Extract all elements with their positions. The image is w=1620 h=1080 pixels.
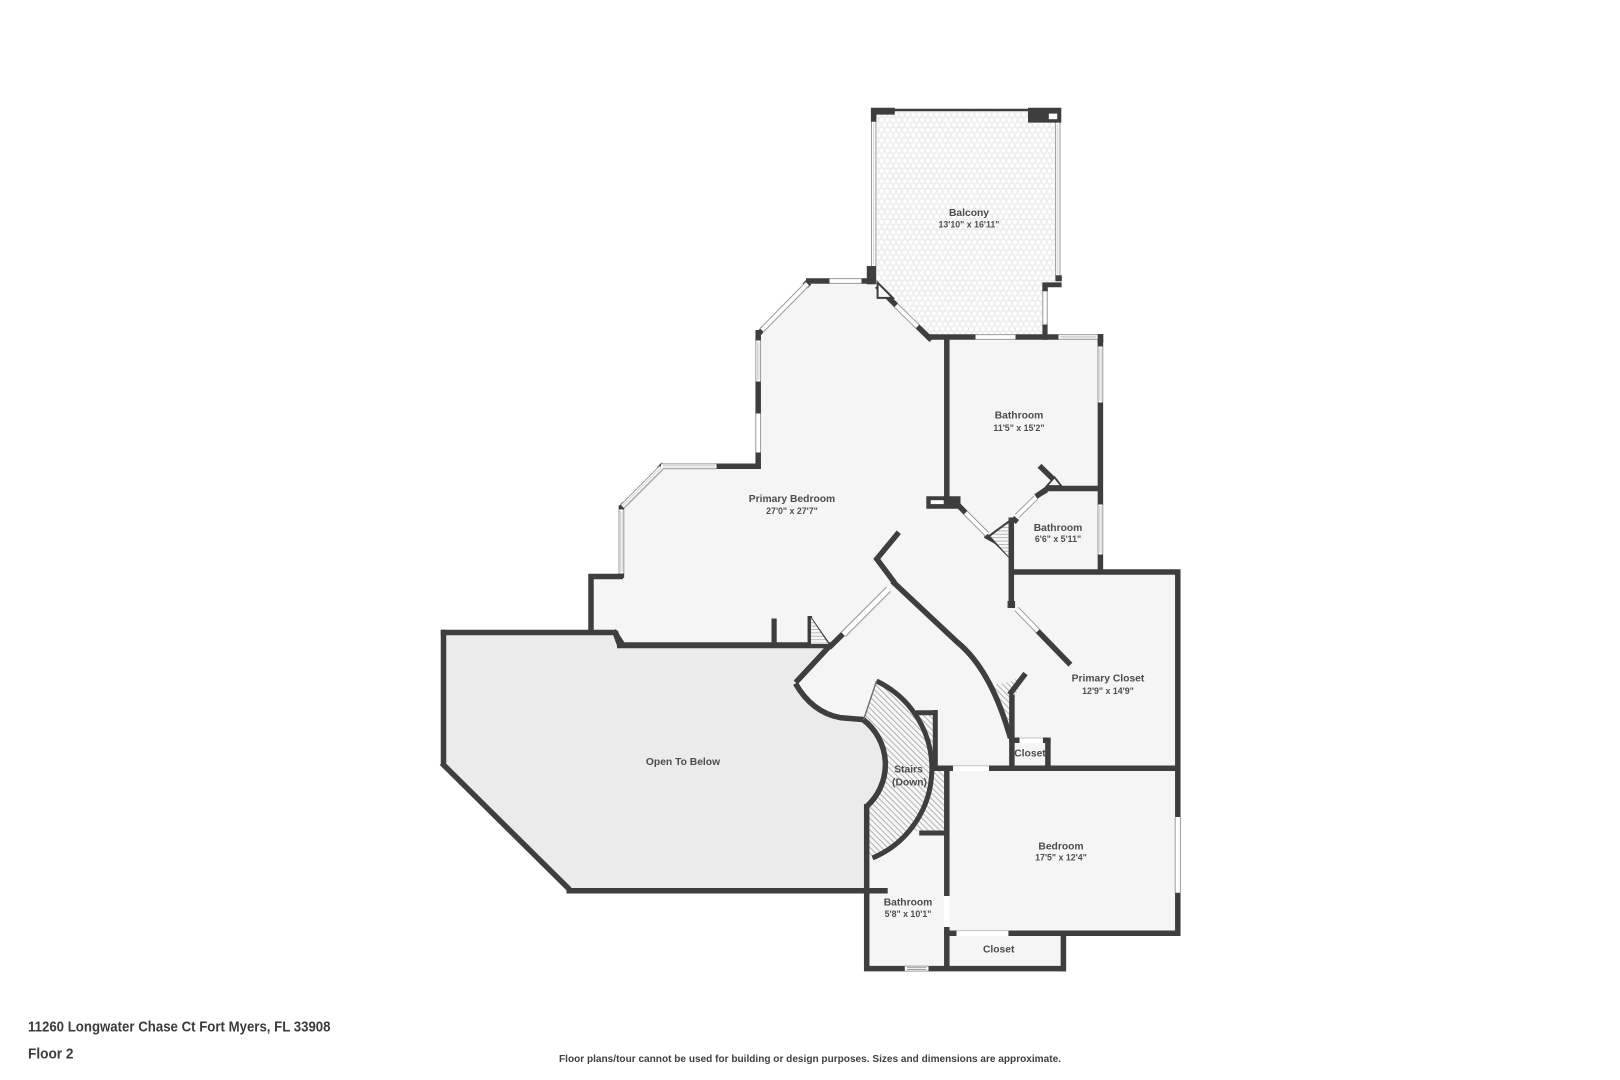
svg-text:Open To Below: Open To Below [646, 757, 721, 768]
svg-text:(Down): (Down) [892, 777, 927, 788]
svg-text:11'5" x 15'2": 11'5" x 15'2" [993, 423, 1044, 433]
svg-text:12'9" x 14'9": 12'9" x 14'9" [1082, 686, 1134, 696]
svg-text:Bathroom: Bathroom [1034, 523, 1083, 534]
svg-text:Closet: Closet [983, 945, 1015, 956]
svg-text:Closet: Closet [1014, 748, 1046, 759]
svg-text:11260 Longwater Chase Ct Fort: 11260 Longwater Chase Ct Fort Myers, FL … [28, 1020, 331, 1036]
svg-text:Stairs: Stairs [894, 765, 923, 776]
svg-text:Bathroom: Bathroom [884, 898, 933, 909]
svg-text:13'10" x 16'11": 13'10" x 16'11" [939, 220, 1000, 230]
svg-text:6'6" x 5'11": 6'6" x 5'11" [1035, 534, 1081, 544]
svg-text:Balcony: Balcony [949, 208, 989, 219]
svg-text:Primary Closet: Primary Closet [1072, 674, 1145, 685]
svg-text:Floor plans/tour cannot be use: Floor plans/tour cannot be used for buil… [559, 1054, 1061, 1065]
svg-text:17'5" x 12'4": 17'5" x 12'4" [1035, 852, 1087, 862]
svg-text:27'0" x 27'7": 27'0" x 27'7" [766, 506, 818, 516]
svg-text:5'8" x 10'1": 5'8" x 10'1" [885, 909, 932, 919]
svg-text:Primary Bedroom: Primary Bedroom [749, 494, 835, 505]
svg-text:Bedroom: Bedroom [1038, 841, 1083, 852]
svg-text:Bathroom: Bathroom [995, 410, 1044, 421]
svg-text:Floor 2: Floor 2 [28, 1047, 74, 1063]
